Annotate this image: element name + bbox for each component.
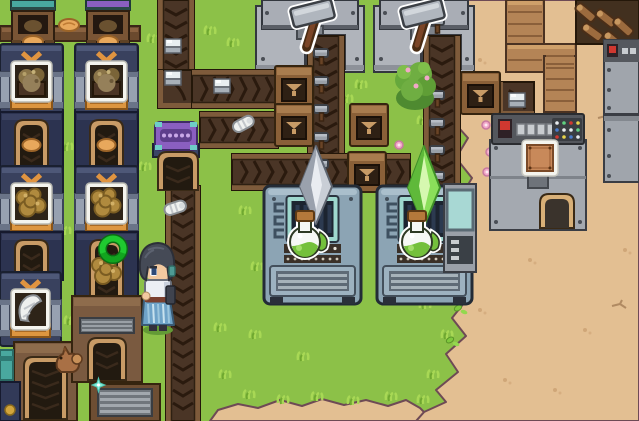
copper-plate-icon [522, 140, 558, 176]
conveyor-tunnel-building[interactable] [72, 296, 142, 382]
hammer-recipe-icon [398, 0, 456, 46]
game-viewport[interactable] [0, 0, 639, 421]
conveyor-belt-horizontal[interactable] [192, 70, 278, 108]
loader-hopper-box[interactable] [461, 72, 500, 114]
white-shell-item[interactable] [164, 198, 188, 216]
belt-tunnel-arch[interactable] [156, 150, 200, 192]
small-critter[interactable] [52, 344, 82, 378]
collector-output-base[interactable] [75, 112, 138, 170]
machine-fragment[interactable] [0, 350, 13, 380]
edge-machine[interactable] [604, 116, 639, 182]
potion-flask-icon [286, 210, 332, 260]
white-cube-item[interactable] [213, 78, 232, 95]
collector-output-base[interactable] [0, 112, 63, 170]
white-cube-item[interactable] [164, 70, 183, 87]
collector-machine[interactable] [0, 166, 63, 236]
hammer-item[interactable] [312, 102, 332, 122]
machine-fragment[interactable] [0, 382, 20, 421]
conveyor-belt-vertical[interactable] [158, 0, 194, 74]
potion-flask-icon [398, 210, 444, 260]
flower-bush[interactable] [394, 60, 436, 108]
white-cube-item[interactable] [164, 38, 183, 55]
edge-machine[interactable] [604, 40, 639, 114]
selection-ring[interactable] [98, 234, 128, 264]
player-character[interactable] [136, 240, 178, 336]
collector-machine[interactable] [0, 44, 63, 116]
collector-machine[interactable] [75, 166, 138, 236]
collector-machine[interactable] [0, 272, 61, 346]
hammer-item[interactable] [312, 74, 332, 94]
dough-item[interactable] [58, 18, 80, 32]
loader-hopper-box[interactable] [275, 66, 313, 108]
loader-hopper-box[interactable] [350, 104, 388, 146]
white-shell-item[interactable] [232, 114, 256, 132]
wooden-walkway[interactable] [506, 0, 576, 112]
console-side-machine[interactable] [444, 184, 476, 272]
sparkle-effect [92, 378, 105, 392]
collector-machine[interactable] [75, 44, 138, 116]
loader-hopper-box[interactable] [275, 104, 313, 146]
log-conveyor[interactable] [576, 0, 639, 44]
input-hopper[interactable] [8, 0, 58, 48]
hammer-item[interactable] [312, 46, 332, 66]
input-hopper[interactable] [83, 0, 133, 48]
hammer-recipe-icon [288, 0, 346, 46]
hammer-item[interactable] [428, 116, 448, 136]
